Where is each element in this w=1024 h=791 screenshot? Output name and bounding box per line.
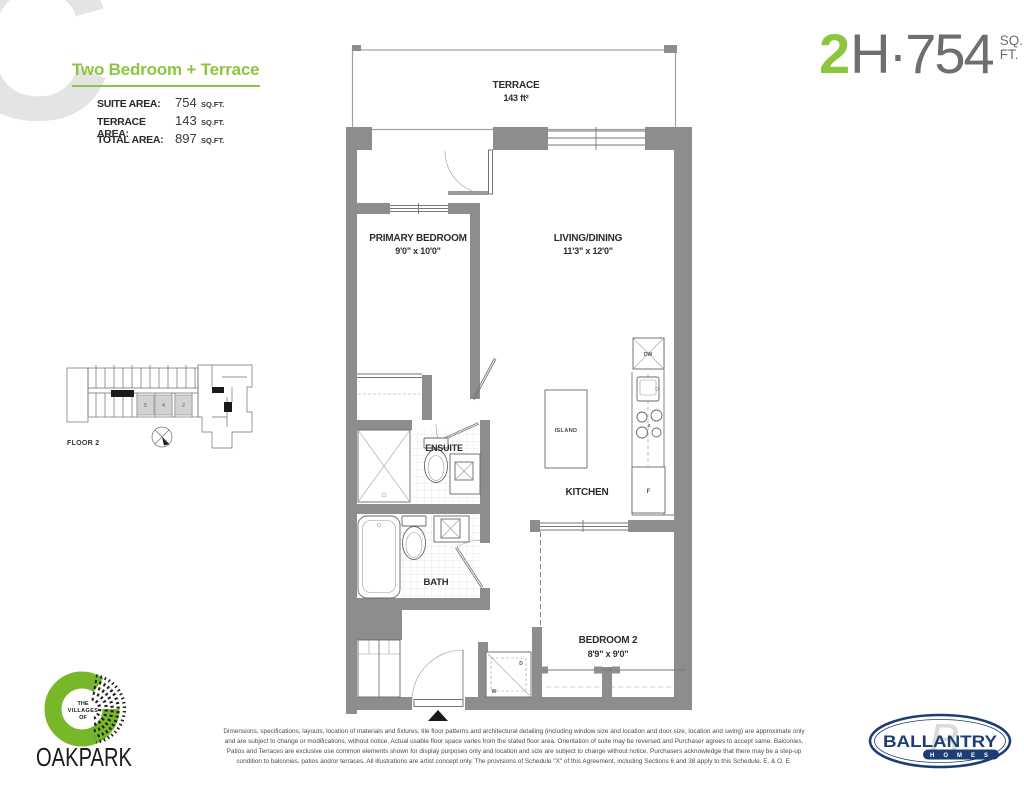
unit-code: 2 H·754 SQ. FT. (819, 26, 1023, 82)
oakpark-villages: VILLAGES (68, 708, 99, 714)
suite-area-unit: SQ.FT. (201, 100, 224, 109)
primary-bedroom-label: PRIMARY BEDROOM (369, 233, 467, 244)
unit-suffix: H·754 (850, 26, 993, 82)
dishwasher-label: DW (644, 352, 653, 358)
title-block: Two Bedroom + Terrace SUITE AREA: 754 SQ… (72, 60, 282, 149)
keyplan-highlighted-units: 5 4 2 (137, 395, 192, 415)
total-area-row: TOTAL AREA: 897 SQ.FT. (97, 131, 282, 149)
oakpark-wordmark: OAKPARK (36, 742, 133, 772)
bedroom2-dims: 8'9" x 9'0" (588, 649, 629, 659)
bedroom2-sliding-glass (540, 520, 628, 625)
entry-door (412, 650, 465, 710)
bath-toilet (402, 516, 426, 560)
kitchen-label: KITCHEN (565, 487, 608, 498)
ballantry-wordmark: BALLANTRY (883, 732, 998, 751)
living-window (543, 127, 650, 150)
total-area-label: TOTAL AREA: (97, 134, 175, 146)
terrace-label: TERRACE (493, 80, 540, 91)
entry-marker (428, 710, 448, 721)
living-dining-dims: 11'3" x 12'0" (563, 246, 613, 256)
oakpark-the: THE (78, 701, 89, 707)
title-underline (72, 85, 260, 87)
island-label: ISLAND (555, 428, 578, 434)
stove-label: S (647, 423, 650, 428)
bath-label: BATH (424, 577, 449, 588)
primary-bedroom-window (385, 203, 453, 214)
area-table: SUITE AREA: 754 SQ.FT. TERRACE AREA: 143… (97, 95, 282, 149)
shower (358, 430, 410, 502)
plan-title: Two Bedroom + Terrace (72, 60, 282, 80)
keyplan-floor-label: FLOOR 2 (67, 440, 99, 447)
total-area-unit: SQ.FT. (201, 136, 224, 145)
fridge-label: F (647, 489, 651, 495)
terrace-area-text: 143 ft² (503, 93, 528, 103)
ensuite-vanity-sink (450, 454, 480, 494)
terrace-area-value: 143 (175, 113, 199, 128)
suite-area-row: SUITE AREA: 754 SQ.FT. (97, 95, 282, 113)
primary-closet (357, 374, 422, 394)
unit-sqft-label: SQ. FT. (1000, 34, 1023, 62)
total-area-value: 897 (175, 131, 199, 146)
disclaimer-text: Dimensions, specifications, layouts, loc… (222, 727, 806, 767)
oakpark-logo: THE VILLAGES OF OAKPARK (32, 664, 172, 776)
unit-floor-digit: 2 (819, 26, 850, 82)
keyplan: 5 4 2 FLOOR 2 (62, 357, 262, 457)
compass-icon (152, 427, 172, 447)
kitchen-sink (637, 377, 659, 401)
brochure-page: { "header": { "watermark": "C", "plan_ti… (0, 0, 1024, 791)
bedroom2-closets (542, 667, 692, 688)
foyer-closet (358, 640, 400, 697)
floorplan: TERRACE 143 ft² PRIMARY BEDROOM 9'0" x 1… (340, 42, 696, 724)
keyplan-unit-1: 5 (144, 403, 147, 409)
terrace-area-row: TERRACE AREA: 143 SQ.FT. (97, 113, 282, 131)
keyplan-unit-2: 4 (162, 403, 165, 409)
bedroom2-label: BEDROOM 2 (579, 635, 638, 646)
washer-label: W (492, 689, 497, 695)
primary-bedroom-dims: 9'0" x 10'0" (395, 246, 440, 256)
bathtub (358, 516, 400, 598)
suite-area-label: SUITE AREA: (97, 98, 175, 110)
suite-area-value: 754 (175, 95, 199, 110)
terrace-area-unit: SQ.FT. (201, 118, 224, 127)
bath-vanity-sink (434, 516, 469, 542)
oakpark-logo-mark: THE VILLAGES OF (53, 676, 124, 742)
living-dining-label: LIVING/DINING (554, 233, 623, 244)
oakpark-of: OF (79, 715, 87, 721)
ballantry-logo: B BALLANTRY HOMES (866, 712, 1014, 774)
dryer-label: D (519, 661, 523, 667)
keyplan-unit-3: 2 (182, 403, 185, 409)
ensuite-label: ENSUITE (425, 443, 463, 453)
terrace-door (445, 150, 493, 195)
